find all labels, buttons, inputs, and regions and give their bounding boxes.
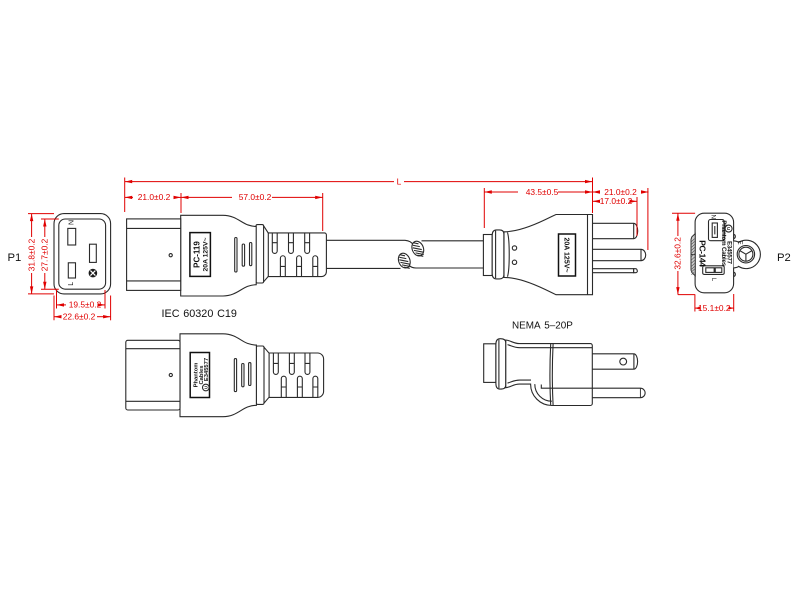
svg-text:32.6±0.2: 32.6±0.2 — [673, 237, 683, 270]
svg-text:U: U — [726, 227, 731, 230]
svg-text:E: E — [736, 241, 742, 245]
svg-text:19.5±0.2: 19.5±0.2 — [69, 300, 102, 310]
svg-text:20A 125V~: 20A 125V~ — [563, 238, 570, 273]
svg-text:22.6±0.2: 22.6±0.2 — [63, 312, 96, 322]
svg-text:E345577: E345577 — [204, 358, 210, 381]
svg-text:N: N — [68, 220, 75, 225]
svg-text:P1: P1 — [8, 252, 22, 264]
svg-text:15.1±0.2: 15.1±0.2 — [698, 303, 731, 313]
svg-text:P2: P2 — [777, 252, 791, 264]
svg-text:U: U — [204, 386, 209, 389]
svg-text:43.5±0.5: 43.5±0.5 — [526, 187, 559, 197]
svg-text:17.0±0.2: 17.0±0.2 — [600, 196, 633, 206]
svg-text:IEC 60320 C19: IEC 60320 C19 — [162, 308, 237, 320]
svg-text:20A 125V~: 20A 125V~ — [202, 237, 209, 271]
svg-text:L: L — [68, 282, 75, 286]
svg-text:L: L — [397, 176, 402, 186]
svg-text:NEMA 5–20P: NEMA 5–20P — [512, 321, 573, 332]
svg-text:57.0±0.2: 57.0±0.2 — [239, 192, 272, 202]
svg-text:PC-119: PC-119 — [192, 241, 201, 268]
svg-text:27.7±0.2: 27.7±0.2 — [40, 238, 50, 271]
svg-text:E345577: E345577 — [725, 241, 731, 264]
svg-text:PC-144: PC-144 — [698, 240, 708, 267]
svg-text:21.0±0.2: 21.0±0.2 — [138, 192, 171, 202]
svg-text:31.8±0.2: 31.8±0.2 — [26, 238, 36, 271]
svg-text:N: N — [710, 215, 716, 219]
